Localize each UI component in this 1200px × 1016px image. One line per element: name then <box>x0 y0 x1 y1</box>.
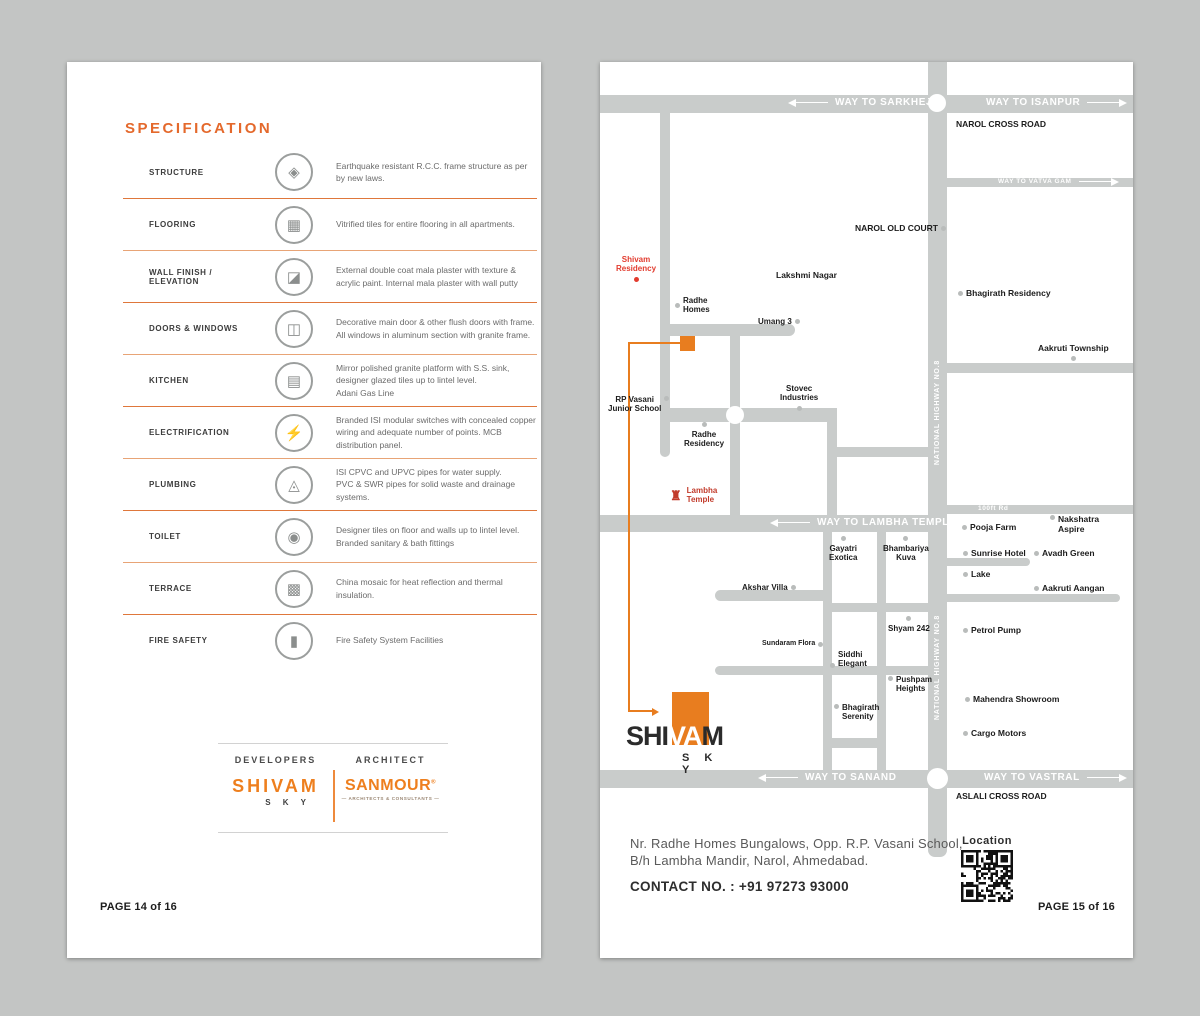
specification-list: STRUCTURE◈Earthquake resistant R.C.C. fr… <box>123 146 537 666</box>
map-place-nakshatra-aspire: Nakshatra Aspire <box>1050 514 1099 534</box>
spec-label: TOILET <box>149 532 264 541</box>
tiles-icon: ▦ <box>275 206 313 244</box>
place-dot <box>834 704 839 709</box>
leader-line-top <box>628 342 682 344</box>
spec-description: Designer tiles on floor and walls up to … <box>336 524 537 549</box>
place-dot <box>795 319 800 324</box>
mosaic-icon: ▩ <box>275 570 313 608</box>
highway-label-upper: NATIONAL HIGHWAY NO.8 <box>928 347 947 477</box>
map-place-pushpam-heights: Pushpam Heights <box>888 675 932 694</box>
place-dot <box>1034 586 1039 591</box>
road-serenity-south <box>823 738 886 748</box>
map-place-bhagirath-serenity: Bhagirath Serenity <box>834 703 879 722</box>
map-place-siddhi-elegant: Siddhi Elegant <box>830 650 867 669</box>
place-dot <box>664 396 669 401</box>
place-dot <box>958 291 963 296</box>
map-place-aakruti-aangan: Aakruti Aangan <box>1034 583 1105 593</box>
map-place-shivam-residency: Shivam Residency <box>616 255 656 282</box>
developer-logo-sub: S K Y <box>218 798 333 807</box>
road-aangan-stub <box>947 594 1120 602</box>
specification-title: SPECIFICATION <box>125 120 272 137</box>
architect-column: ARCHITECT SANMOUR® — ARCHITECTS & CONSUL… <box>333 744 448 832</box>
roundabout-aslali <box>927 768 948 789</box>
arrow-right-icon <box>1079 181 1111 183</box>
spec-description: Earthquake resistant R.C.C. frame struct… <box>336 160 537 185</box>
place-dot <box>1034 551 1039 556</box>
spec-label: KITCHEN <box>149 376 264 385</box>
road-label-way-to-sarkhej: WAY TO SARKHEJ <box>796 97 932 108</box>
contact-number: CONTACT NO. : +91 97273 93000 <box>630 879 849 894</box>
spec-row-kitchen: KITCHEN▤Mirror polished granite platform… <box>123 354 537 406</box>
road-label-way-to-vastral: WAY TO VASTRAL <box>984 772 1119 783</box>
brand-divider <box>333 770 335 822</box>
spec-label: TERRACE <box>149 584 264 593</box>
road-label-way-to-sanand: WAY TO SANAND <box>766 772 897 783</box>
spec-label: PLUMBING <box>149 480 264 489</box>
spec-label: FLOORING <box>149 220 264 229</box>
road-label-100ft-rd: 100ft Rd <box>978 505 1008 512</box>
place-dot <box>962 525 967 530</box>
spec-label: WALL FINISH / ELEVATION <box>149 268 264 286</box>
spec-row-fire-safety: FIRE SAFETY▮Fire Safety System Facilitie… <box>123 614 537 666</box>
map-place-lake: Lake <box>963 569 990 579</box>
developers-label: DEVELOPERS <box>218 755 333 765</box>
place-dot <box>903 536 908 541</box>
map-place-bhagirath-residency: Bhagirath Residency <box>958 288 1051 298</box>
arrow-left-icon <box>778 522 810 524</box>
qr-code <box>961 850 1013 902</box>
map-place-sundaram-flora: Sundaram Flora <box>762 640 823 648</box>
spec-row-structure: STRUCTURE◈Earthquake resistant R.C.C. fr… <box>123 146 537 198</box>
place-dot <box>1071 356 1076 361</box>
location-map: NATIONAL HIGHWAY NO.8 NATIONAL HIGHWAY N… <box>600 62 1133 857</box>
road-100ft <box>947 505 1133 514</box>
map-place-avadh-green: Avadh Green <box>1034 548 1095 558</box>
place-dot <box>702 422 707 427</box>
developers-column: DEVELOPERS SHIVAM S K Y <box>218 744 333 832</box>
right-page-number: PAGE 15 of 16 <box>1038 901 1115 913</box>
spec-row-terrace: TERRACE▩China mosaic for heat reflection… <box>123 562 537 614</box>
map-place-narol-old-court: NAROL OLD COURT <box>855 223 946 233</box>
spec-description: Vitrified tiles for entire flooring in a… <box>336 218 537 230</box>
place-dot <box>941 226 946 231</box>
map-place-radhe-homes: Radhe Homes <box>675 296 710 315</box>
map-place-gayatri-exotica: Gayatri Exotica <box>829 536 857 563</box>
place-dot <box>797 406 802 411</box>
brochure-spread: { "background": "#c3c5c4", "accent": "#e… <box>0 0 1200 1016</box>
road-township-south <box>947 363 1133 373</box>
arrow-right-icon <box>1087 777 1119 779</box>
map-place-shyam-242: Shyam 242 <box>888 616 930 633</box>
road-vertical-mid <box>730 336 740 532</box>
place-dot <box>963 731 968 736</box>
map-place-stovec-industries: Stovec Industries <box>780 384 818 411</box>
map-place-sunrise-hotel: Sunrise Hotel <box>963 548 1026 558</box>
highway-label-lower: NATIONAL HIGHWAY NO.8 <box>928 607 947 727</box>
map-place-lakshmi-nagar: Lakshmi Nagar <box>776 270 837 280</box>
left-page-number: PAGE 14 of 16 <box>100 901 177 913</box>
place-dot <box>963 628 968 633</box>
spec-label: DOORS & WINDOWS <box>149 324 264 333</box>
spec-row-plumbing: PLUMBING◬ISI CPVC and UPVC pipes for wat… <box>123 458 537 510</box>
spec-description: External double coat mala plaster with t… <box>336 264 537 289</box>
spec-row-doors-windows: DOORS & WINDOWS◫Decorative main door & o… <box>123 302 537 354</box>
map-place-akshar-villa: Akshar Villa <box>742 583 796 592</box>
spec-label: FIRE SAFETY <box>149 636 264 645</box>
toilet-icon: ◉ <box>275 518 313 556</box>
map-place-umang-3: Umang 3 <box>758 317 800 326</box>
place-dot <box>818 642 823 647</box>
place-dot <box>634 277 639 282</box>
place-dot <box>906 616 911 621</box>
spec-label: STRUCTURE <box>149 168 264 177</box>
road-label-way-to-vatva-gam: WAY TO VATVA GAM <box>998 178 1111 185</box>
arrow-left-icon <box>796 102 828 104</box>
spec-description: Fire Safety System Facilities <box>336 634 537 646</box>
road-label-way-to-isanpur: WAY TO ISANPUR <box>986 97 1119 108</box>
map-place-pooja-farm: Pooja Farm <box>962 522 1016 532</box>
temple-icon: ♜ <box>670 489 682 502</box>
arrow-right-icon <box>1087 102 1119 104</box>
right-page: NATIONAL HIGHWAY NO.8 NATIONAL HIGHWAY N… <box>600 62 1133 958</box>
branding-block: DEVELOPERS SHIVAM S K Y ARCHITECT SANMOU… <box>218 743 448 833</box>
stove-icon: ▤ <box>275 362 313 400</box>
place-dot <box>965 697 970 702</box>
map-place-petrol-pump: Petrol Pump <box>963 625 1021 635</box>
spec-description: Branded ISI modular switches with concea… <box>336 414 537 451</box>
site-marker <box>680 336 695 351</box>
left-page: SPECIFICATION STRUCTURE◈Earthquake resis… <box>67 62 541 958</box>
spec-row-flooring: FLOORING▦Vitrified tiles for entire floo… <box>123 198 537 250</box>
qr-label: Location <box>956 835 1018 847</box>
shivam-sky-map-logo: SHIVAM S K Y <box>626 692 738 770</box>
logo-sky-text: S K Y <box>682 752 738 776</box>
place-dot <box>830 663 835 668</box>
place-dot <box>888 676 893 681</box>
door-icon: ◫ <box>275 310 313 348</box>
extinguisher-icon: ▮ <box>275 622 313 660</box>
map-place-bhambariya-kuva: Bhambariya Kuva <box>883 536 929 563</box>
road-lake-stub <box>947 558 1030 566</box>
place-dot <box>963 551 968 556</box>
place-dot <box>841 536 846 541</box>
address: Nr. Radhe Homes Bungalows, Opp. R.P. Vas… <box>630 836 963 870</box>
map-place-rp-vasani-junior-school: RP Vasani Junior School <box>608 395 669 414</box>
spec-row-electrification: ELECTRIFICATION⚡Branded ISI modular swit… <box>123 406 537 458</box>
spec-label: ELECTRIFICATION <box>149 428 264 437</box>
developer-logo: SHIVAM <box>218 776 333 797</box>
shower-icon: ◬ <box>275 466 313 504</box>
place-dot <box>675 303 680 308</box>
map-place-cargo-motors: Cargo Motors <box>963 728 1026 738</box>
map-place-aakruti-township: Aakruti Township <box>1038 343 1109 361</box>
spec-description: ISI CPVC and UPVC pipes for water supply… <box>336 466 537 503</box>
place-dot <box>1050 515 1055 520</box>
road-label-way-to-lambha-temple: WAY TO LAMBHA TEMPLE <box>778 517 956 528</box>
plaster-icon: ◪ <box>275 258 313 296</box>
architect-label: ARCHITECT <box>333 755 448 765</box>
location-qr-block: Location <box>956 835 1018 902</box>
map-place-radhe-residency: Radhe Residency <box>684 422 724 449</box>
place-dot <box>963 572 968 577</box>
spec-description: Decorative main door & other flush doors… <box>336 316 537 341</box>
place-dot <box>791 585 796 590</box>
spec-description: China mosaic for heat reflection and the… <box>336 576 537 601</box>
spec-description: Mirror polished granite platform with S.… <box>336 362 537 399</box>
map-place-mahendra-showroom: Mahendra Showroom <box>965 694 1059 704</box>
map-place-lambha-temple: ♜Lambha Temple <box>670 486 717 505</box>
architect-tagline: — ARCHITECTS & CONSULTANTS — <box>333 796 448 801</box>
map-place-aslali-cross-road: ASLALI CROSS ROAD <box>956 791 1047 801</box>
roundabout-school <box>726 406 744 424</box>
spec-row-wall-finish-elevation: WALL FINISH / ELEVATION◪External double … <box>123 250 537 302</box>
architect-logo: SANMOUR® <box>333 777 448 795</box>
arrow-left-icon <box>766 777 798 779</box>
lightning-icon: ⚡ <box>275 414 313 452</box>
road-vertical-south2 <box>877 532 886 770</box>
map-place-narol-cross-road: NAROL CROSS ROAD <box>956 119 1046 129</box>
spec-row-toilet: TOILET◉Designer tiles on floor and walls… <box>123 510 537 562</box>
layers-icon: ◈ <box>275 153 313 191</box>
